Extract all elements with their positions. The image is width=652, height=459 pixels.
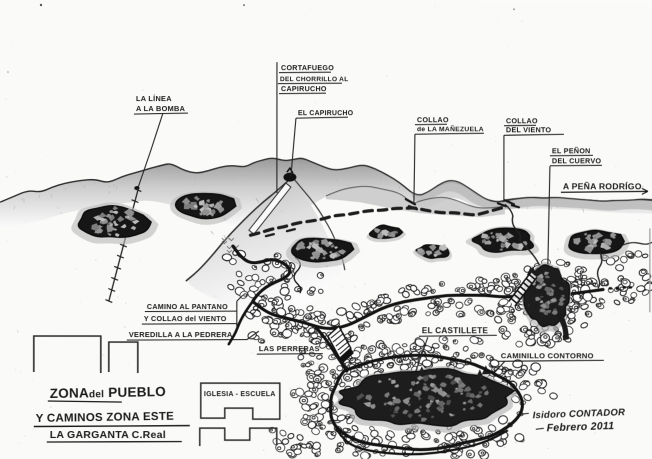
svg-text:Y COLLAO del VIENTO: Y COLLAO del VIENTO bbox=[144, 314, 227, 323]
svg-text:de LA MAÑEZUELA: de LA MAÑEZUELA bbox=[417, 124, 484, 133]
svg-text:EL PEÑON: EL PEÑON bbox=[552, 146, 591, 155]
svg-text:A LA BOMBA: A LA BOMBA bbox=[136, 104, 186, 113]
svg-text:LA LÍNEA: LA LÍNEA bbox=[136, 94, 172, 103]
svg-text:CAPIRUCHO: CAPIRUCHO bbox=[281, 84, 327, 93]
svg-text:CAMINO AL PANTANO: CAMINO AL PANTANO bbox=[147, 302, 228, 311]
svg-text:DEL CUERVO: DEL CUERVO bbox=[552, 156, 602, 165]
svg-text:VEREDILLA A LA PEDRERA: VEREDILLA A LA PEDRERA bbox=[129, 330, 233, 339]
svg-text:COLLAO: COLLAO bbox=[417, 115, 449, 124]
svg-text:DEL CHORRILLO AL: DEL CHORRILLO AL bbox=[280, 76, 348, 83]
svg-text:DEL VIENTO: DEL VIENTO bbox=[506, 125, 552, 134]
svg-text:LA GARGANTA C.Real: LA GARGANTA C.Real bbox=[50, 429, 166, 441]
svg-text:EL CASTILLETE: EL CASTILLETE bbox=[422, 326, 489, 335]
svg-text:EL CAPIRUCHO: EL CAPIRUCHO bbox=[298, 110, 354, 117]
svg-text:Y CAMINOS ZONA ESTE: Y CAMINOS ZONA ESTE bbox=[36, 411, 175, 425]
svg-text:COLLAO: COLLAO bbox=[506, 116, 538, 125]
svg-text:IGLESIA - ESCUELA: IGLESIA - ESCUELA bbox=[204, 391, 276, 398]
svg-text:Febrero 2011: Febrero 2011 bbox=[546, 420, 614, 434]
svg-text:LAS PERRERAS: LAS PERRERAS bbox=[259, 344, 320, 353]
svg-text:CORTAFUEGO: CORTAFUEGO bbox=[281, 63, 334, 72]
svg-text:A PEÑA RODRÍGO: A PEÑA RODRÍGO bbox=[563, 181, 642, 191]
svg-text:CAMINILLO CONTORNO: CAMINILLO CONTORNO bbox=[501, 351, 594, 360]
svg-text:ZONAdel PUEBLO: ZONAdel PUEBLO bbox=[50, 384, 166, 401]
